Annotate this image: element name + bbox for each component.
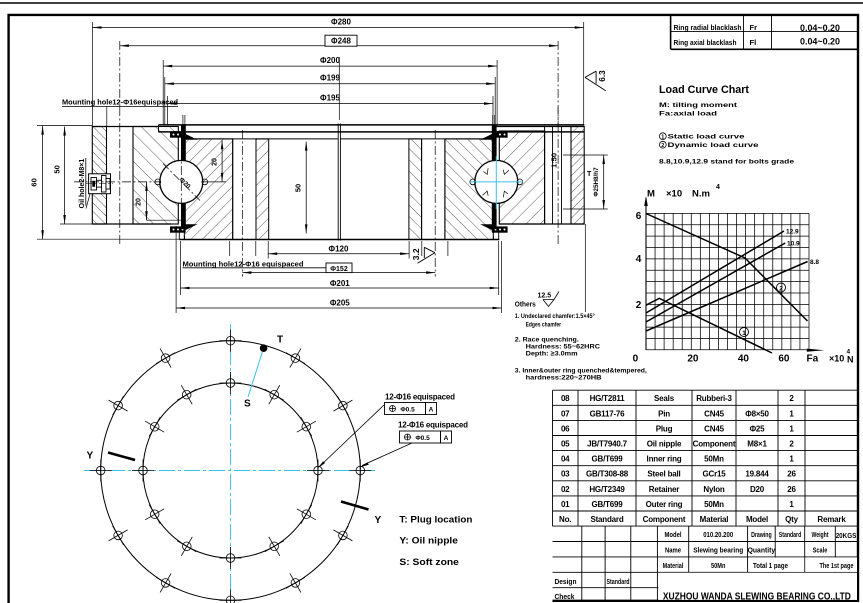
svg-text:4: 4 xyxy=(636,254,642,265)
svg-text:XUZHOU WANDA SLEWING BEARING C: XUZHOU WANDA SLEWING BEARING CO.,LTD xyxy=(663,591,851,602)
svg-text:10.9: 10.9 xyxy=(787,241,800,248)
svg-text:M: M xyxy=(647,189,655,200)
svg-text:20: 20 xyxy=(687,354,699,365)
svg-text:Static load curve: Static load curve xyxy=(668,134,745,141)
svg-text:26: 26 xyxy=(787,470,796,479)
svg-text:8.8: 8.8 xyxy=(810,259,819,266)
svg-text:Model: Model xyxy=(665,530,682,539)
svg-text:Name: Name xyxy=(665,546,681,555)
svg-text:60: 60 xyxy=(778,354,790,365)
svg-text:0.04~0.20: 0.04~0.20 xyxy=(800,23,840,33)
svg-text:S: S xyxy=(244,399,251,410)
svg-text:12-Φ16 equispaced: 12-Φ16 equispaced xyxy=(398,421,468,430)
svg-text:HG/T2349: HG/T2349 xyxy=(589,485,625,494)
svg-text:Standard: Standard xyxy=(779,530,802,539)
svg-text:Fl: Fl xyxy=(750,38,757,47)
svg-text:Φ25: Φ25 xyxy=(750,424,766,433)
svg-text:Load Curve Chart: Load Curve Chart xyxy=(659,84,749,96)
svg-text:T: Plug location: T: Plug location xyxy=(399,515,472,525)
svg-text:Y: Y xyxy=(375,515,382,526)
svg-text:GB/T699: GB/T699 xyxy=(591,500,623,509)
svg-text:2: 2 xyxy=(779,286,783,293)
svg-text:Check: Check xyxy=(555,592,576,601)
svg-text:4: 4 xyxy=(716,184,720,191)
svg-text:Ring radial blacklash: Ring radial blacklash xyxy=(674,23,742,32)
svg-text:12-Φ16 equispaced: 12-Φ16 equispaced xyxy=(385,393,455,402)
svg-text:Steel ball: Steel ball xyxy=(647,470,680,479)
svg-text:50Mn: 50Mn xyxy=(704,455,724,464)
svg-text:A: A xyxy=(429,407,434,414)
svg-text:05: 05 xyxy=(561,440,570,449)
svg-text:CN45: CN45 xyxy=(704,424,724,433)
svg-text:50Mn: 50Mn xyxy=(704,500,724,509)
svg-text:Qty: Qty xyxy=(785,515,798,524)
svg-text:Φ248: Φ248 xyxy=(331,37,351,46)
svg-text:Retainer: Retainer xyxy=(649,485,679,494)
svg-text:Weight: Weight xyxy=(812,530,829,539)
svg-text:GB117-76: GB117-76 xyxy=(590,409,626,418)
svg-text:Standard: Standard xyxy=(607,577,630,586)
svg-text:Mounting hole12-Φ16 equispaced: Mounting hole12-Φ16 equispaced xyxy=(183,259,304,268)
svg-text:50: 50 xyxy=(53,165,62,173)
svg-text:Model: Model xyxy=(746,515,768,524)
svg-text:6.3: 6.3 xyxy=(598,70,607,82)
svg-text:1: 1 xyxy=(742,330,746,337)
svg-text:Drawing: Drawing xyxy=(751,530,772,539)
svg-text:Total 1 page: Total 1 page xyxy=(753,561,788,570)
svg-text:20KGS: 20KGS xyxy=(836,531,857,540)
svg-text:Fa:axial load: Fa:axial load xyxy=(659,111,717,118)
svg-text:07: 07 xyxy=(561,409,570,418)
svg-text:Ring axial blacklash: Ring axial blacklash xyxy=(674,38,737,47)
svg-text:06: 06 xyxy=(561,424,570,433)
svg-text:8.8,10.9,12.9 stand for bolts: 8.8,10.9,12.9 stand for bolts grade xyxy=(659,159,794,166)
svg-text:60: 60 xyxy=(30,178,39,186)
svg-text:Pin: Pin xyxy=(658,409,670,418)
svg-text:0.04~0.20: 0.04~0.20 xyxy=(800,37,840,47)
svg-text:Mounting hole12-Φ16equispaced: Mounting hole12-Φ16equispaced xyxy=(62,98,178,107)
svg-text:50: 50 xyxy=(294,184,303,192)
svg-text:Fa: Fa xyxy=(807,354,819,365)
svg-text:JB/T7940.7: JB/T7940.7 xyxy=(587,440,628,449)
svg-text:M8×1: M8×1 xyxy=(747,440,767,449)
svg-text:Component: Component xyxy=(693,440,736,449)
svg-text:Component: Component xyxy=(643,515,686,524)
svg-text:04: 04 xyxy=(561,455,570,464)
svg-text:20: 20 xyxy=(136,198,143,206)
svg-text:Φ199: Φ199 xyxy=(320,74,340,83)
svg-text:Material: Material xyxy=(700,515,729,524)
svg-text:6: 6 xyxy=(636,211,642,222)
svg-text:Φ200: Φ200 xyxy=(320,56,340,65)
svg-text:12.9: 12.9 xyxy=(786,229,799,236)
svg-text:×10: ×10 xyxy=(666,189,682,200)
svg-text:Rubberi-3: Rubberi-3 xyxy=(696,394,732,403)
svg-text:GCr15: GCr15 xyxy=(702,470,726,479)
svg-text:A: A xyxy=(444,435,449,442)
svg-text:19.844: 19.844 xyxy=(745,470,769,479)
svg-text:Dynamic load curve: Dynamic load curve xyxy=(668,142,759,149)
svg-text:1. Undeclared chamfer:1.5×45°: 1. Undeclared chamfer:1.5×45° xyxy=(515,312,595,320)
svg-text:Material: Material xyxy=(663,561,684,570)
svg-text:50Mn: 50Mn xyxy=(711,561,726,570)
svg-text:Φ280: Φ280 xyxy=(331,18,351,27)
svg-text:D20: D20 xyxy=(750,485,765,494)
svg-text:T: T xyxy=(277,335,283,346)
svg-text:40: 40 xyxy=(738,354,750,365)
svg-text:Edges chamfer: Edges chamfer xyxy=(526,321,562,328)
svg-text:1:50: 1:50 xyxy=(550,153,559,168)
svg-text:Φ120: Φ120 xyxy=(329,245,349,254)
svg-text:Depth: ≥3.0mm: Depth: ≥3.0mm xyxy=(526,350,578,357)
svg-text:Fr: Fr xyxy=(750,23,758,32)
svg-text:T: T xyxy=(587,171,592,178)
svg-text:Φ0.5: Φ0.5 xyxy=(400,407,415,414)
svg-text:HG/T2811: HG/T2811 xyxy=(590,394,626,403)
svg-text:GB/T308-88: GB/T308-88 xyxy=(586,470,629,479)
svg-text:01: 01 xyxy=(561,500,570,509)
svg-text:1: 1 xyxy=(661,135,664,141)
svg-text:Φ195: Φ195 xyxy=(320,94,340,103)
svg-text:20: 20 xyxy=(212,158,219,166)
svg-text:Plug: Plug xyxy=(656,424,673,433)
svg-text:N.m: N.m xyxy=(692,189,710,200)
svg-text:Inner ring: Inner ring xyxy=(647,455,682,464)
svg-text:02: 02 xyxy=(561,485,570,494)
svg-text:Outer ring: Outer ring xyxy=(646,500,683,509)
svg-text:Oil nipple: Oil nipple xyxy=(647,440,682,449)
svg-text:S: Soft zone: S: Soft zone xyxy=(399,557,459,567)
svg-text:Scale: Scale xyxy=(813,546,828,555)
svg-text:010.20.200: 010.20.200 xyxy=(703,530,733,539)
svg-text:4: 4 xyxy=(847,349,851,356)
svg-text:Φ201: Φ201 xyxy=(330,279,350,288)
svg-text:0: 0 xyxy=(633,354,639,365)
svg-text:Standard: Standard xyxy=(590,515,623,524)
svg-text:Φ205: Φ205 xyxy=(330,298,350,307)
svg-text:Seals: Seals xyxy=(654,394,675,403)
svg-text:Φ0.5: Φ0.5 xyxy=(415,435,430,442)
svg-text:GB/T699: GB/T699 xyxy=(591,455,623,464)
svg-text:Φ8×50: Φ8×50 xyxy=(745,409,769,418)
svg-text:Y: Oil nipple: Y: Oil nipple xyxy=(399,536,458,546)
svg-text:The 1st page: The 1st page xyxy=(820,561,854,570)
svg-text:M: tilting moment: M: tilting moment xyxy=(659,102,738,109)
svg-text:Nylon: Nylon xyxy=(703,485,725,494)
svg-text:Φ25H8/h7: Φ25H8/h7 xyxy=(593,167,600,197)
svg-text:Φ152: Φ152 xyxy=(330,266,348,273)
svg-text:Hardness: 55~62HRC: Hardness: 55~62HRC xyxy=(526,343,601,350)
svg-text:N: N xyxy=(847,355,854,365)
svg-text:08: 08 xyxy=(561,394,570,403)
svg-text:3.2: 3.2 xyxy=(411,248,421,260)
svg-text:Quantity: Quantity xyxy=(748,546,776,555)
svg-text:12.5: 12.5 xyxy=(538,293,552,300)
svg-text:2: 2 xyxy=(661,143,664,149)
svg-text:Y: Y xyxy=(87,451,94,462)
svg-text:hardness:220~270HB: hardness:220~270HB xyxy=(526,375,602,382)
svg-text:No.: No. xyxy=(559,515,571,524)
svg-text:Remark: Remark xyxy=(817,515,846,524)
svg-text:Oil hole2-M8×1: Oil hole2-M8×1 xyxy=(79,159,86,209)
svg-text:Design: Design xyxy=(555,577,577,586)
svg-text:CN45: CN45 xyxy=(704,409,724,418)
svg-text:26: 26 xyxy=(787,485,796,494)
svg-text:Others: Others xyxy=(515,300,536,309)
svg-text:03: 03 xyxy=(561,470,570,479)
svg-text:2: 2 xyxy=(636,300,642,311)
svg-text:×10: ×10 xyxy=(829,354,844,364)
svg-text:Slewing bearing: Slewing bearing xyxy=(693,546,743,555)
